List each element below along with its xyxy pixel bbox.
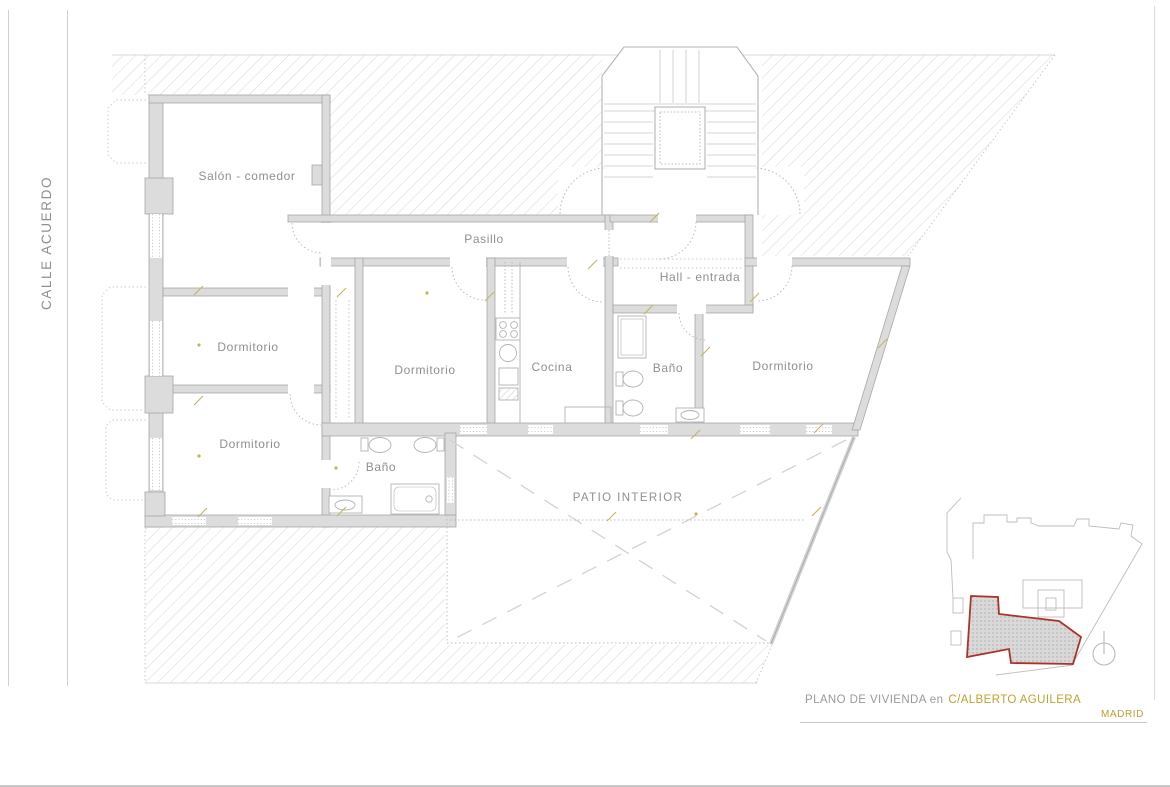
toilet-icon xyxy=(616,372,623,386)
bathroom-center-fixtures xyxy=(329,438,444,515)
drawing-title: PLANO DE VIVIENDA enC/ALBERTO AGUILERA xyxy=(805,694,1081,706)
room-label-patio-interior: PATIO INTERIOR xyxy=(573,492,684,504)
city-label: MADRID xyxy=(1101,709,1144,720)
title-block: PLANO DE VIVIENDA enC/ALBERTO AGUILERA M… xyxy=(800,694,1147,723)
drawing-title-prefix: PLANO DE VIVIENDA en xyxy=(805,694,943,706)
floor-plan-canvas: CALLE ACUERDO xyxy=(0,0,1170,785)
shower-icon xyxy=(618,316,646,358)
room-label-bano-right: Baño xyxy=(653,361,683,375)
room-label-cocina: Cocina xyxy=(532,360,573,374)
street-label: CALLE ACUERDO xyxy=(39,176,54,310)
room-label-dormitorio-left-mid: Dormitorio xyxy=(217,340,278,354)
appliance-icon xyxy=(499,388,518,400)
floor-plan-page: CALLE ACUERDO xyxy=(0,0,1170,787)
kitchen-fixtures xyxy=(496,262,611,423)
north-compass-icon xyxy=(1093,631,1115,665)
room-label-dormitorio-center: Dormitorio xyxy=(394,363,455,377)
room-label-pasillo: Pasillo xyxy=(464,232,504,246)
bidet-icon xyxy=(616,401,623,415)
kitchen-sink-icon xyxy=(500,345,517,362)
room-label-dormitorio-right: Dormitorio xyxy=(752,359,813,373)
room-label-bano-center: Baño xyxy=(366,460,396,474)
room-label-hall-entrada: Hall - entrada xyxy=(660,270,740,284)
elevator-shaft xyxy=(655,107,705,169)
balcony-outlines xyxy=(102,100,150,500)
drawing-title-street: C/ALBERTO AGUILERA xyxy=(948,694,1081,706)
counter-icon xyxy=(565,407,611,423)
room-label-salon: Salón - comedor xyxy=(198,169,295,183)
washbasin-icon xyxy=(329,496,362,513)
neighbor-hatch-areas xyxy=(112,55,1055,685)
site-plan-minimap xyxy=(947,498,1142,675)
toilet-icon xyxy=(361,438,368,451)
room-label-dormitorio-left-low: Dormitorio xyxy=(219,437,280,451)
oven-icon xyxy=(499,368,518,385)
bidet-icon xyxy=(437,438,444,451)
patio-interior xyxy=(447,437,854,644)
